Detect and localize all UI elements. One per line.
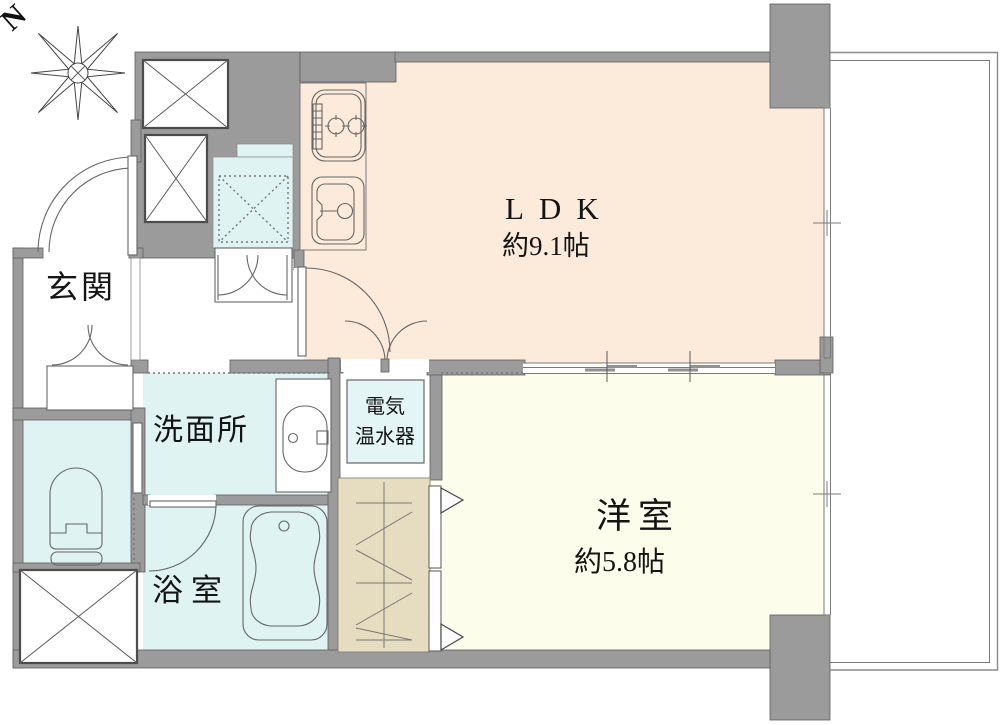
room-label-ldk: LDK	[505, 193, 614, 224]
room-label-western-room: 洋室	[596, 499, 680, 534]
pillar-top-right	[770, 4, 830, 108]
entrance-step-edge	[131, 258, 140, 360]
floor-plan: N 玄関 LDK 約9.1帖 洋室 約5.8帖 洗面所 浴室 電気 温水器	[0, 0, 1000, 725]
compass: N	[0, 0, 125, 120]
water-heater-label-line2: 温水器	[340, 422, 430, 452]
refrigerator-space	[213, 144, 293, 248]
vanity-sink	[276, 379, 331, 492]
room-size-ldk: 約9.1帖	[502, 233, 590, 260]
toilet-door	[133, 423, 142, 493]
toilet-floor	[23, 420, 140, 565]
water-heater-label-line1: 電気	[340, 392, 430, 422]
room-label-bathroom: 浴室	[152, 575, 230, 606]
compass-north-label: N	[0, 0, 33, 37]
shaft-box-middle	[145, 135, 207, 222]
shaft-box-top	[143, 60, 228, 128]
floor-plan-drawing: N	[0, 0, 1000, 725]
balcony-outline	[830, 53, 998, 671]
room-label-entrance: 玄関	[46, 271, 116, 303]
hall-storage	[215, 248, 292, 302]
closet	[338, 478, 430, 652]
room-label-washroom: 洗面所	[153, 416, 249, 446]
room-label-water-heater: 電気 温水器	[340, 392, 430, 452]
pipe-shaft-box-bottom	[20, 570, 137, 663]
pillar-bottom-right	[770, 615, 830, 720]
front-door	[38, 156, 137, 255]
room-size-western-room: 約5.8帖	[574, 549, 665, 577]
